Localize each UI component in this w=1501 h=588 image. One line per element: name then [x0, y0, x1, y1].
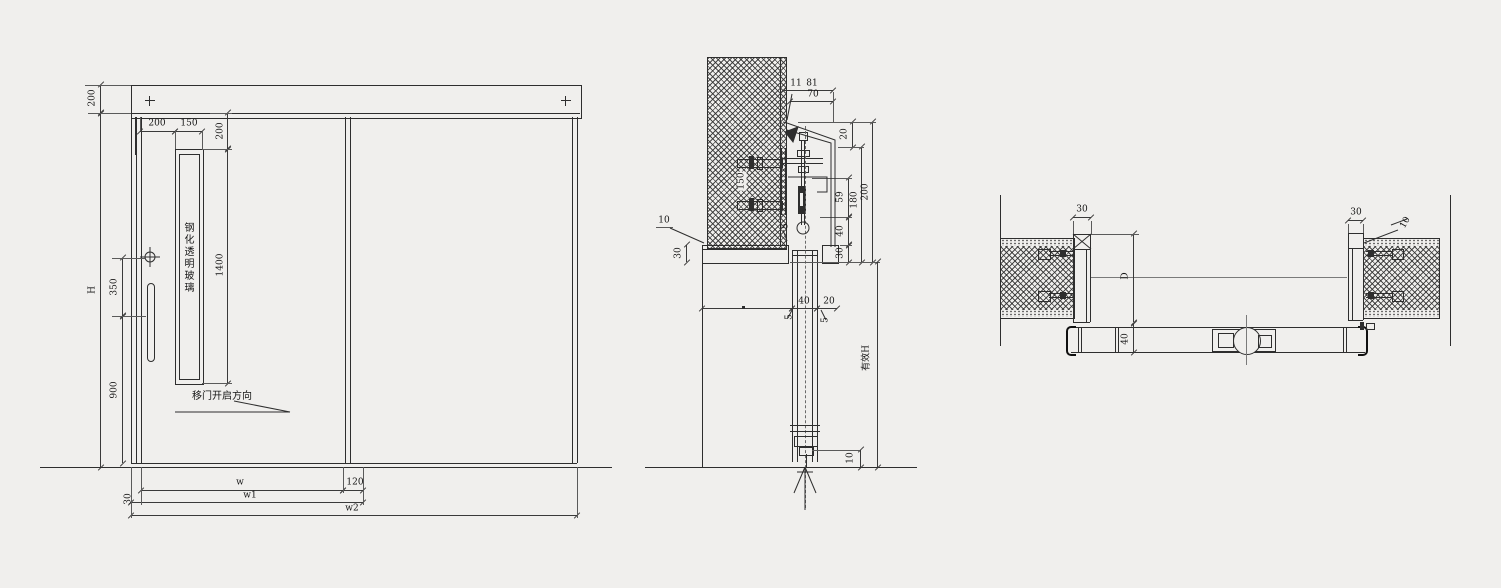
- plan-view: 30 D 40 30: [0, 0, 1501, 588]
- cad-canvas: 钢化透明玻璃 移门开启方向 200 H 350 900 200 150: [0, 0, 1501, 588]
- plan-linework: [990, 195, 1470, 375]
